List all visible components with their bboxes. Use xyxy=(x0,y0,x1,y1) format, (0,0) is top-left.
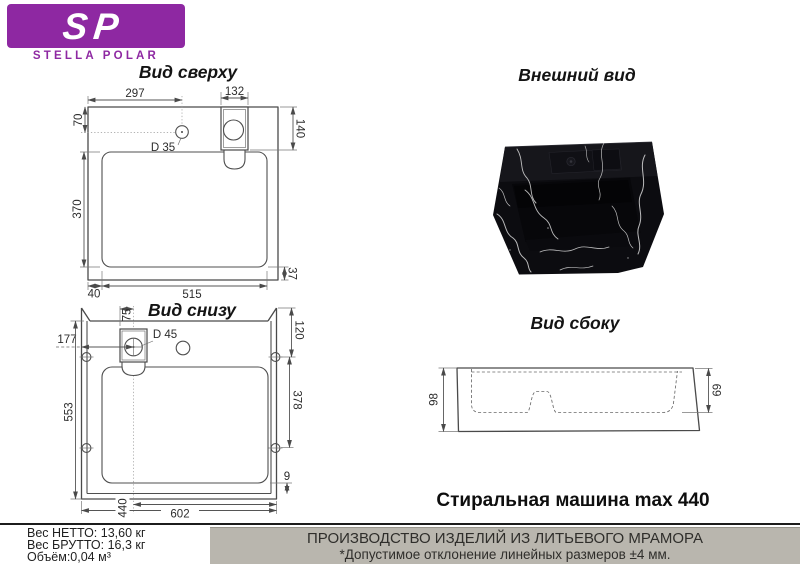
spec-sheet: 297 132 70 140 D 35 370 37 40 515 xyxy=(0,0,800,564)
dim-602-label: 602 xyxy=(170,509,189,521)
dim-120-label: 120 xyxy=(293,320,305,339)
production-line2: *Допустимое отклонение линейных размеров… xyxy=(210,547,800,562)
brand-logo: SP xyxy=(7,4,185,48)
dim-98-label: 98 xyxy=(429,393,441,406)
production-note-box: ПРОИЗВОДСТВО ИЗДЕЛИЙ ИЗ ЛИТЬЕВОГО МРАМОР… xyxy=(210,527,800,564)
production-line1: ПРОИЗВОДСТВО ИЗДЕЛИЙ ИЗ ЛИТЬЕВОГО МРАМОР… xyxy=(210,531,800,547)
dim-440-label: 440 xyxy=(118,498,130,517)
dim-d45-label: D 45 xyxy=(153,329,177,341)
sink-photo xyxy=(493,142,664,275)
dim-d35-label: D 35 xyxy=(151,142,175,154)
dim-370-label: 370 xyxy=(72,199,84,218)
dim-553-label: 553 xyxy=(64,402,76,421)
brand-name: STELLA POLAR xyxy=(7,50,185,62)
logo-sp-text: SP xyxy=(61,8,130,45)
dim-9-label: 9 xyxy=(284,471,290,483)
bottom-view-drawing: 75 177 D 45 120 378 553 9 440 602 xyxy=(56,306,305,522)
external-view-title: Внешний вид xyxy=(492,65,662,86)
dim-177-label: 177 xyxy=(57,334,76,346)
side-view-drawing: 98 69 xyxy=(429,368,722,432)
dim-40-label: 40 xyxy=(88,289,101,301)
washing-machine-caption: Стиральная машина max 440 xyxy=(423,490,723,512)
dim-70-label: 70 xyxy=(73,114,85,127)
side-view-title: Вид сбоку xyxy=(490,313,660,334)
footer-divider xyxy=(0,523,800,525)
weight-info: Вес НЕТТО: 13,60 кг Вес БРУТТО: 16,3 кг … xyxy=(27,527,146,564)
top-view-drawing: 297 132 70 140 D 35 370 37 40 515 xyxy=(72,86,306,301)
technical-drawing-canvas: 297 132 70 140 D 35 370 37 40 515 xyxy=(0,0,800,564)
dim-140-label: 140 xyxy=(294,119,306,138)
dim-37-label: 37 xyxy=(286,267,298,280)
dim-378-label: 378 xyxy=(291,390,303,409)
bottom-view-title: Вид снизу xyxy=(107,300,277,321)
volume: Объём:0,04 м³ xyxy=(27,551,146,563)
dim-69-label: 69 xyxy=(710,384,722,397)
top-view-title: Вид сверху xyxy=(103,62,273,83)
dim-132-label: 132 xyxy=(225,86,244,98)
dim-297-label: 297 xyxy=(125,88,144,100)
